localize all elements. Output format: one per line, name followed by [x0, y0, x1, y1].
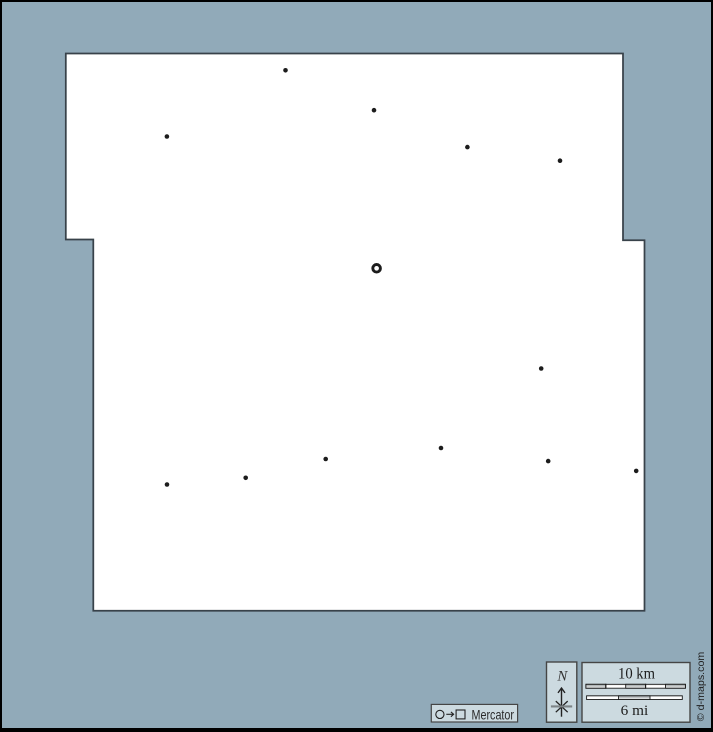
svg-text:N: N: [556, 669, 568, 685]
svg-text:© d-maps.com: © d-maps.com: [695, 651, 707, 721]
svg-text:Mercator: Mercator: [472, 707, 515, 723]
svg-text:6 mi: 6 mi: [621, 703, 649, 719]
svg-text:10 km: 10 km: [618, 666, 655, 683]
